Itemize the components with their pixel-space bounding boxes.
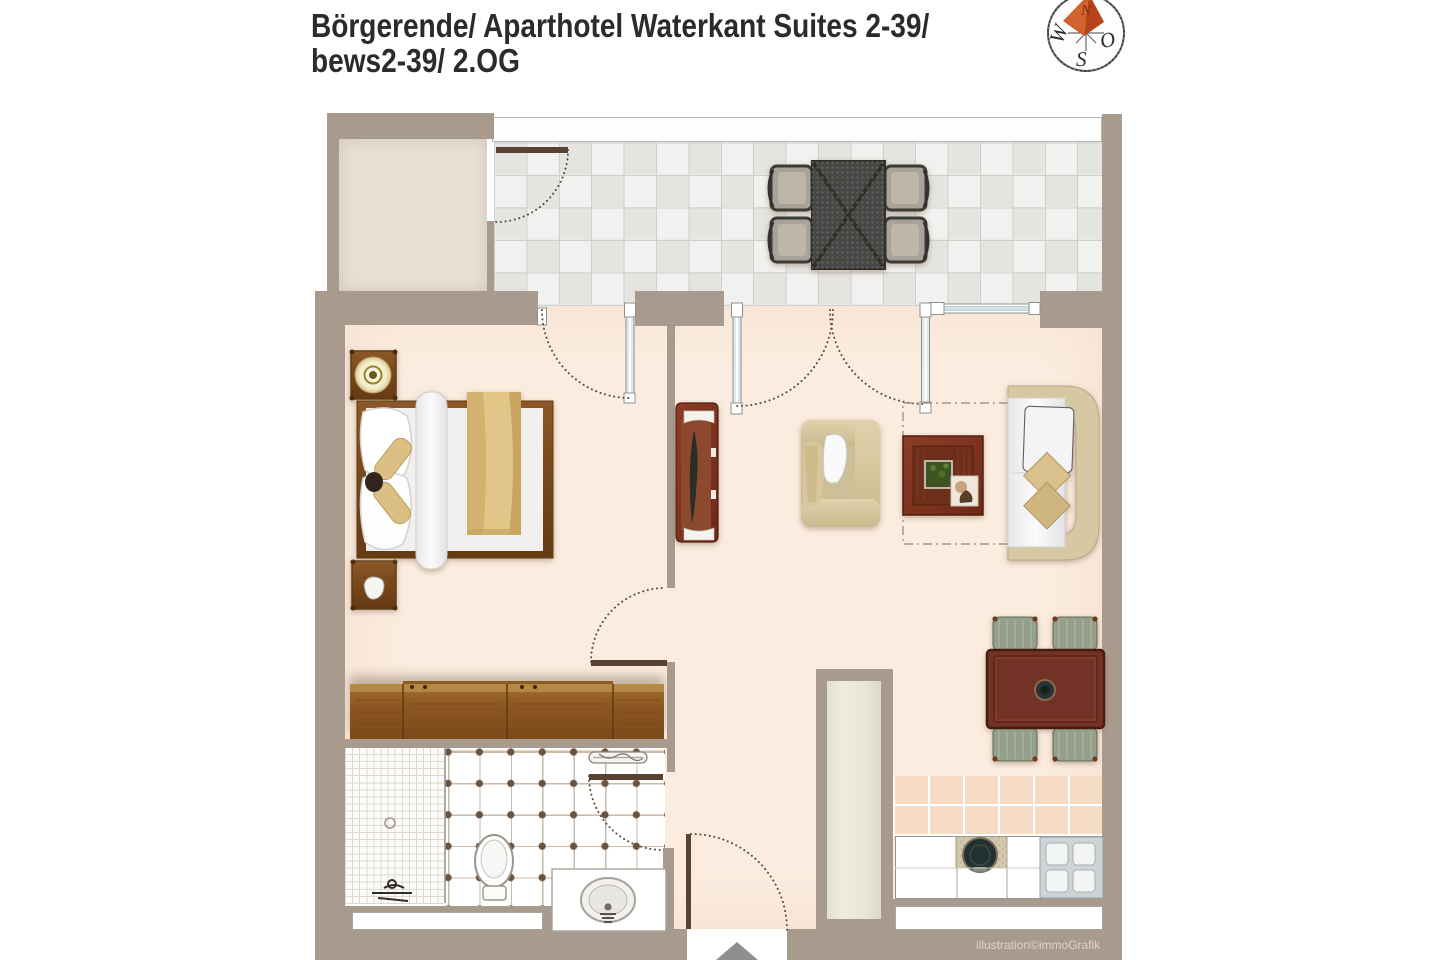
svg-text:S: S <box>1076 47 1087 71</box>
svg-text:N: N <box>1080 3 1092 19</box>
